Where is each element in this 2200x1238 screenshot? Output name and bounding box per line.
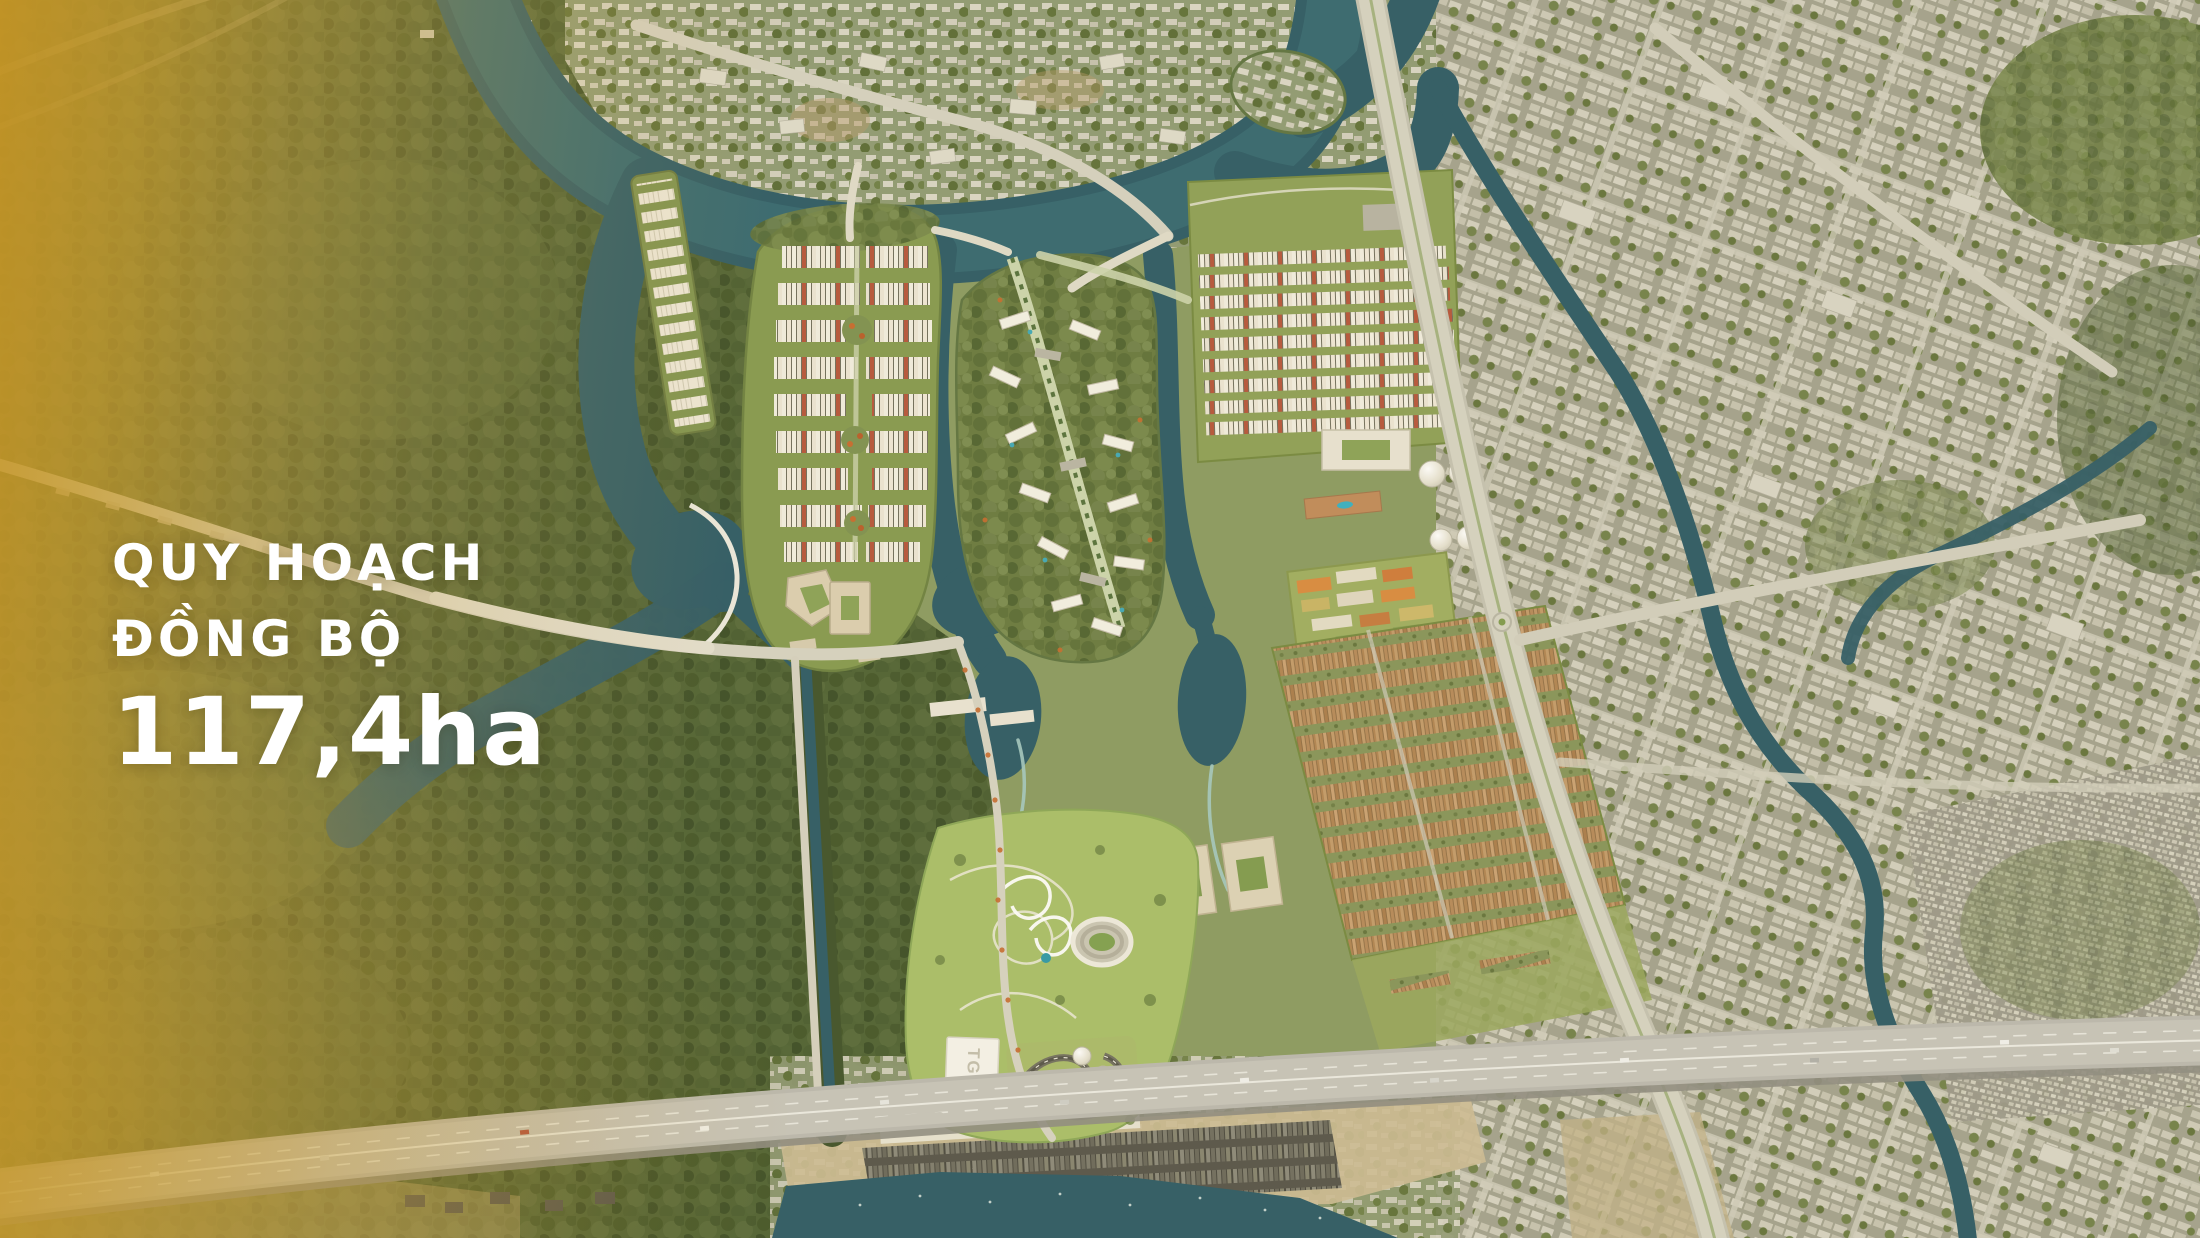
- headline-line2: ĐỒNG BỘ: [112, 614, 547, 664]
- rowhouse-island: [742, 197, 941, 670]
- apartment-island: [956, 254, 1164, 662]
- area-figure: 117,4ha: [112, 686, 547, 780]
- headline-block: QUY HOẠCH ĐỒNG BỘ 117,4ha: [112, 538, 547, 780]
- aerial-render: TGC: [0, 0, 2200, 1238]
- headline-line1: QUY HOẠCH: [112, 538, 547, 588]
- stadium: [1073, 919, 1131, 965]
